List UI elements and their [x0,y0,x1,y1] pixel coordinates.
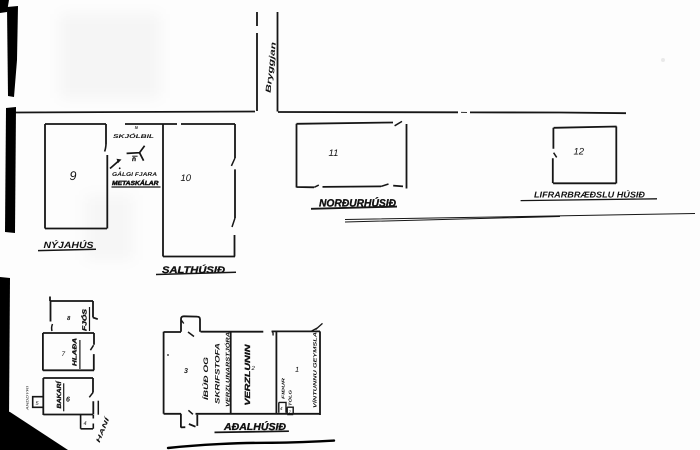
svg-text:GÁLGI FJARA: GÁLGI FJARA [112,171,157,178]
svg-text:NÝJAHÚS: NÝJAHÚS [44,240,94,250]
svg-text:METASKÁLAR: METASKÁLAR [112,179,159,187]
svg-text:7: 7 [62,351,66,358]
svg-text:VÍNTUNNU GEYMSLA: VÍNTUNNU GEYMSLA [312,331,319,408]
svg-text:SKRIFSTOFA: SKRIFSTOFA [215,343,222,404]
svg-text:12: 12 [574,147,585,158]
svg-text:FJÓS: FJÓS [81,309,89,331]
svg-text:SKJÓLBIL: SKJÓLBIL [113,133,155,140]
svg-text:TÓLG: TÓLG [288,390,293,406]
svg-text:BAKARÍ: BAKARÍ [55,380,63,409]
svg-text:1: 1 [295,365,299,374]
svg-text:ÍBÚÐ OG: ÍBÚÐ OG [202,357,210,400]
svg-text:4: 4 [84,421,87,427]
svg-text:HLAÐA: HLAÐA [72,338,79,366]
svg-text:FIÐUR: FIÐUR [281,378,286,399]
svg-text:VERZLUNIN: VERZLUNIN [243,344,252,406]
svg-text:2: 2 [251,365,256,372]
svg-text:LIFRARBRÆÐSLU HÚSIÐ: LIFRARBRÆÐSLU HÚSIÐ [534,190,645,200]
svg-text:10: 10 [181,173,192,184]
svg-text:11: 11 [329,148,339,159]
svg-text:ANDDYRI: ANDDYRI [26,386,30,412]
svg-text:9: 9 [70,169,77,183]
svg-text:3: 3 [184,368,188,375]
svg-text:VERZLUNARSTJÓRA: VERZLUNARSTJÓRA [225,332,232,407]
svg-text:6: 6 [66,397,70,404]
